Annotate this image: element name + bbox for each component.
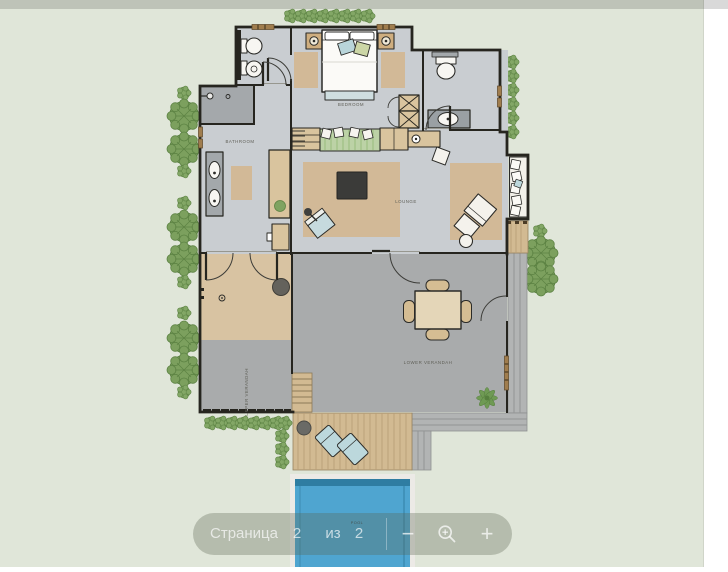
page-total-count: 2	[348, 513, 370, 555]
palm-plant	[477, 388, 498, 409]
lower-verandah-label: LOWER VERANDAH	[404, 360, 453, 365]
bedroom-label: BEDROOM	[338, 102, 364, 107]
bed-bench	[325, 91, 374, 100]
zoom-out-button[interactable]: −	[393, 513, 423, 555]
planter-pot	[273, 279, 290, 296]
wardrobe	[399, 95, 419, 128]
zoom-in-button[interactable]: +	[472, 513, 502, 555]
trees-right	[524, 224, 558, 296]
upper-verandah-label: UPPER VERANDAH	[244, 368, 249, 416]
pdf-toolbar: Страница 2 из 2 − +	[193, 513, 512, 555]
bushes-bottom-row	[205, 416, 293, 469]
toolbar-divider	[386, 518, 387, 550]
upper-verandah-tan-floor	[200, 254, 292, 340]
bathroom-label: BATHROOM	[225, 139, 254, 144]
lounge-label: LOUNGE	[395, 199, 417, 204]
page-of-label: из	[320, 513, 346, 555]
page-number-input[interactable]: 2	[286, 513, 308, 555]
daybed-green	[320, 127, 380, 151]
side-deck	[506, 221, 528, 253]
coffee-table	[337, 172, 367, 199]
bushes-top-row	[285, 9, 376, 23]
verandah-steps	[292, 373, 312, 412]
magnifier-zoom-icon	[437, 524, 457, 544]
pdf-viewer: BEDROOM BATHROOM LOUNGE UPPER VERANDAH L…	[0, 0, 728, 567]
zoom-search-button[interactable]	[432, 513, 462, 555]
floor-plan: BEDROOM BATHROOM LOUNGE UPPER VERANDAH L…	[0, 0, 703, 567]
trees-left-column	[167, 86, 201, 399]
page-label: Страница	[210, 513, 278, 555]
pdf-page: BEDROOM BATHROOM LOUNGE UPPER VERANDAH L…	[0, 0, 704, 567]
lower-verandah-floor	[292, 254, 507, 412]
shower-floor	[200, 85, 254, 124]
top-bar	[0, 0, 728, 9]
